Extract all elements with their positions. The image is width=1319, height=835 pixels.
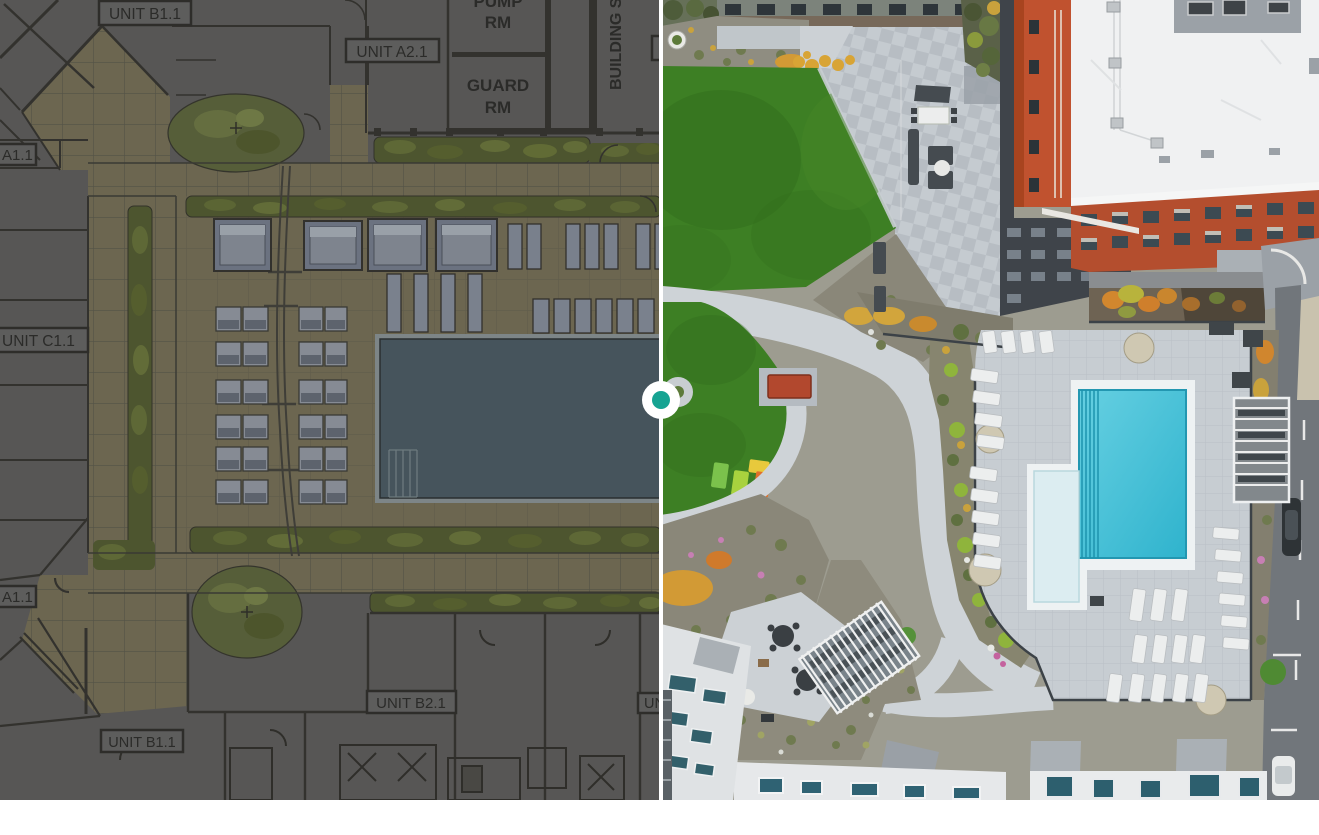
svg-text:UNIT B2.1: UNIT B2.1 [376,695,446,712]
svg-text:PUMP: PUMP [473,0,522,11]
svg-text:RM: RM [485,98,511,117]
svg-text:UNIT A2.1: UNIT A2.1 [356,44,427,61]
svg-text:BUILDING S: BUILDING S [608,0,625,90]
svg-text:UNIT B1.1: UNIT B1.1 [109,6,181,23]
svg-text:A1.1: A1.1 [2,589,33,606]
svg-text:RM: RM [485,13,511,32]
svg-text:A1.1: A1.1 [2,147,33,164]
svg-text:UNIT B1.1: UNIT B1.1 [108,735,175,751]
svg-text:UNIT C1.1: UNIT C1.1 [2,333,75,350]
svg-text:GUARD: GUARD [467,76,529,95]
